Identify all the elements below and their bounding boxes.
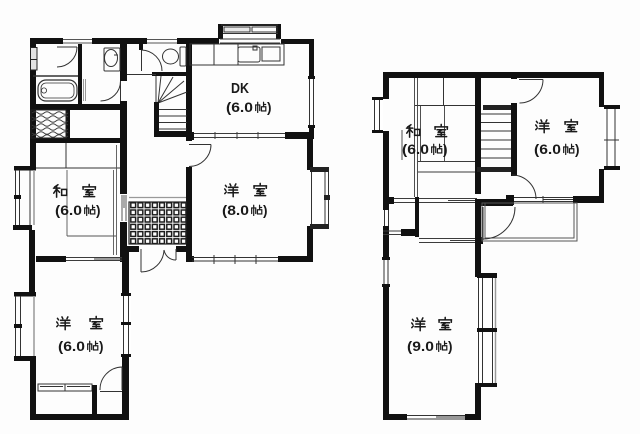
svg-text:DK: DK: [231, 80, 249, 97]
svg-text:): ): [96, 203, 101, 218]
svg-text:(6.0: (6.0: [226, 100, 253, 115]
svg-text:): ): [448, 339, 453, 354]
svg-text:(6.0: (6.0: [58, 339, 85, 354]
svg-text:(9.0: (9.0: [407, 339, 434, 354]
svg-text:(6.0: (6.0: [402, 142, 429, 157]
svg-text:(6.0: (6.0: [55, 203, 82, 218]
svg-text:): ): [443, 142, 448, 157]
svg-text:): ): [575, 142, 580, 157]
svg-text:(8.0: (8.0: [222, 203, 249, 218]
svg-text:(6.0: (6.0: [534, 142, 561, 157]
svg-text:): ): [267, 100, 272, 115]
svg-text:): ): [99, 339, 104, 354]
svg-text:): ): [263, 203, 268, 218]
